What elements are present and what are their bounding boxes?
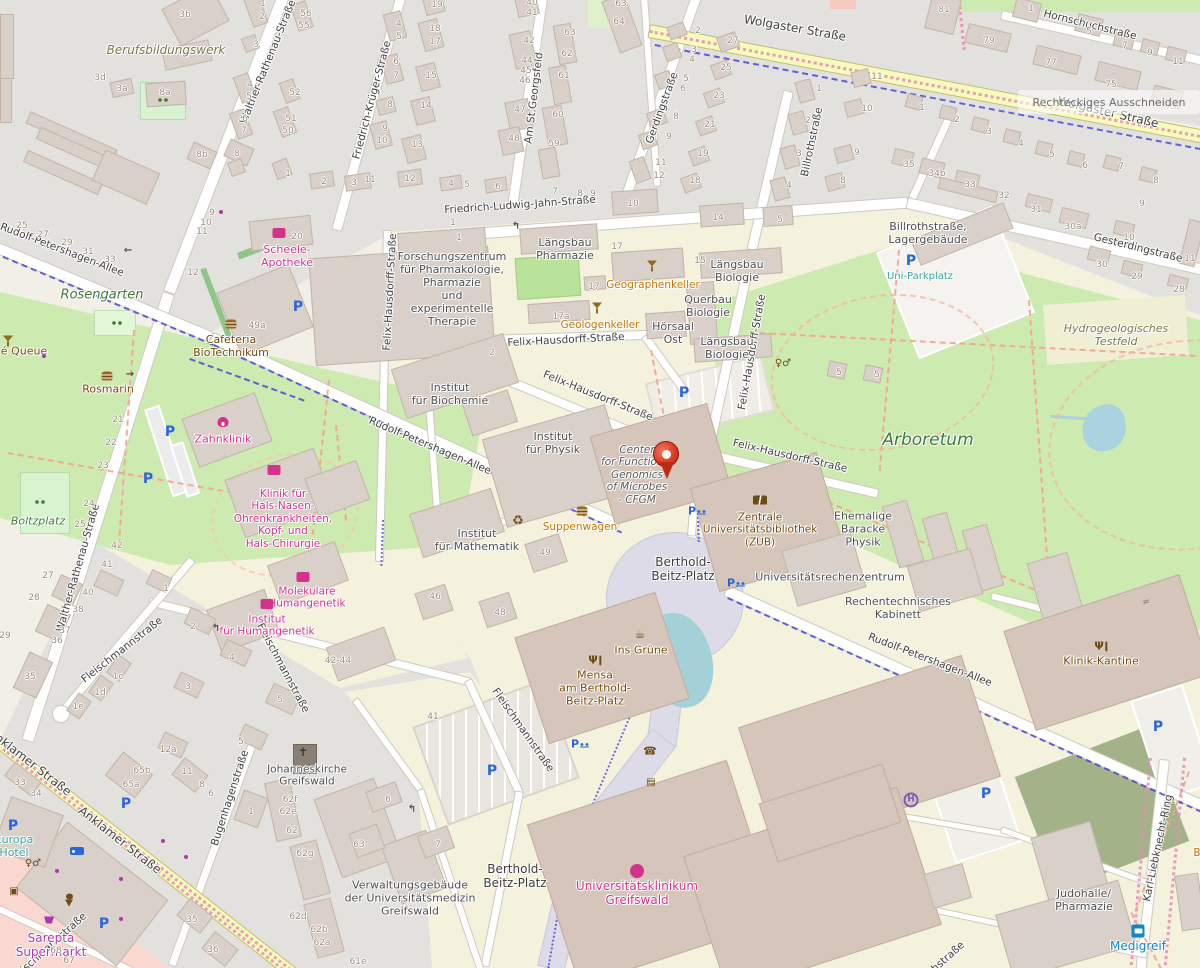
house-number: 47 — [514, 105, 525, 115]
house-number: 17 — [611, 242, 622, 252]
place-label-line: Berthold- — [483, 862, 546, 876]
house-number: 1e — [72, 702, 83, 712]
place-label-line: und — [398, 290, 507, 303]
house-number: 38 — [72, 605, 83, 615]
place-label-line: Apotheke — [261, 257, 313, 270]
place-label: Verwaltungsgebäudeder Universitätsmedizi… — [345, 880, 476, 919]
dot-icon — [161, 839, 165, 843]
house-number: 40 — [82, 588, 93, 598]
place-label: Boltzplatz — [11, 516, 65, 529]
place-label: EhemaligeBarackePhysik — [834, 511, 892, 550]
house-number: 1 — [260, 0, 266, 9]
house-number: 41 — [526, 8, 537, 18]
house-number: 9 — [1139, 199, 1145, 209]
map-canvas[interactable]: Walther-Rathenau-StraßeWalther-Rathenau-… — [0, 0, 1200, 968]
place-label-line: Zentrale — [703, 511, 818, 523]
house-number: 81 — [938, 5, 949, 15]
house-number: 5 — [277, 695, 283, 705]
phone-icon: ☎ — [643, 746, 657, 757]
house-number: 1d — [94, 688, 105, 698]
house-number: 11 — [196, 227, 207, 237]
house-number: 45 — [520, 66, 531, 76]
place-label: Institutfür Physik — [526, 431, 580, 457]
place-label: CafeteriaBioTechnikum — [193, 334, 269, 360]
house-number: 11 — [181, 767, 192, 777]
church-icon: ✝ — [298, 746, 308, 758]
house-number: 44 — [521, 56, 532, 66]
house-number: 35 — [903, 160, 914, 170]
pbike-icon[interactable]: P — [571, 739, 589, 750]
house-number: 3b — [179, 10, 190, 20]
place-label: Universitätsrechenzentrum — [755, 572, 905, 585]
park-icon[interactable]: P — [679, 386, 689, 400]
house-number: 62 — [286, 826, 297, 836]
house-number: 28 — [28, 593, 39, 603]
house-number: 35 — [186, 915, 197, 925]
house-number: 8 — [199, 780, 205, 790]
wc-icon: ♀♂ — [25, 859, 41, 869]
street-label: Sauerbruchstraße — [889, 939, 967, 968]
house-number: 50 — [282, 126, 293, 136]
house-number: 17 — [429, 37, 440, 47]
cock-icon — [592, 303, 602, 314]
place-label: Forschungszentrumfür Pharmakologie,Pharm… — [398, 251, 507, 329]
place-label-line: B — [1193, 847, 1200, 859]
place-label-line: Testfeld — [1064, 336, 1169, 349]
house-number: 3 — [351, 178, 357, 188]
house-number: 5 — [1049, 150, 1055, 160]
place-label-line: BioTechnikum — [193, 347, 269, 360]
street-label: Anklamer Straße — [0, 725, 74, 798]
place-label-line: am Berthold- — [559, 683, 631, 696]
play-icon — [34, 499, 46, 506]
house-number: 15 — [425, 71, 436, 81]
house-number: 10 — [376, 136, 387, 146]
park-icon[interactable]: P — [293, 300, 303, 314]
house-number: 17a — [553, 312, 570, 322]
street-label: Friedrich-Ludwig-Jahn-Straße — [444, 194, 596, 217]
turn-icon: ↰ — [512, 222, 520, 232]
pbike-icon[interactable]: P — [727, 578, 745, 589]
house-number: 9 — [854, 148, 860, 158]
place-label-line: Klinik für — [234, 488, 332, 500]
house-number: 1 — [450, 218, 456, 228]
place-label-line: Biologie — [700, 349, 753, 362]
house-number: 9 — [382, 124, 388, 134]
house-number: 33 — [14, 778, 25, 788]
house-number: 1c — [113, 672, 124, 682]
house-number: 6 — [495, 182, 501, 192]
place-label: Suppenwagen — [543, 521, 618, 533]
place-label-line: Rosengarten — [61, 287, 144, 302]
house-number: 49 — [539, 548, 550, 558]
house-number: 25 — [720, 63, 731, 73]
house-number: 2 — [190, 622, 196, 632]
place-label-line: für Physik — [526, 444, 580, 457]
street-label: Bugenhagenstraße — [209, 749, 251, 848]
house-number: 9 — [209, 208, 215, 218]
house-number: 28 — [1173, 285, 1184, 295]
house-number: 61 — [558, 71, 569, 81]
place-label: LängsbauBiologie — [700, 336, 753, 362]
house-number: 49a — [249, 321, 266, 331]
label-layer: Walther-Rathenau-StraßeWalther-Rathenau-… — [0, 0, 1200, 968]
house-number: 3 — [796, 149, 802, 159]
house-number: 29 — [61, 238, 72, 248]
burger-icon — [577, 507, 588, 516]
park-icon[interactable]: P — [1153, 720, 1163, 734]
house-number: 42 — [111, 541, 122, 551]
house-number: 79 — [983, 36, 994, 46]
house-number: 3 — [185, 682, 191, 692]
place-label-line: Pharmazie — [398, 277, 507, 290]
place-label-line: für Biochemie — [412, 395, 489, 408]
house-number: 48 — [494, 608, 505, 618]
house-number: 5 — [777, 215, 783, 225]
place-label-line: Pharmazie — [536, 250, 594, 263]
house-number: 8 — [387, 100, 393, 110]
place-label: Rosmarin — [82, 384, 134, 397]
place-label: JohanneskircheGreifswald — [267, 764, 347, 789]
house-number: 41 — [101, 560, 112, 570]
house-number: 8 — [1153, 176, 1159, 186]
place-label-line: Berthold- — [651, 555, 714, 569]
place-label: EuropaHotel — [0, 834, 33, 860]
house-number: 14 — [420, 101, 431, 111]
arrowR-icon: → — [126, 370, 134, 380]
place-label: HörsaalOst — [652, 321, 694, 347]
house-number: 22 — [105, 438, 116, 448]
place-label-line: Berufsbildungswerk — [107, 43, 226, 57]
bus-icon[interactable] — [1132, 925, 1145, 938]
house-number: 2 — [321, 177, 327, 187]
place-label: Judohalle/Pharmazie — [1055, 888, 1113, 914]
house-number: 62f — [283, 795, 298, 805]
house-number: 3a — [116, 84, 127, 94]
house-number: 11 — [871, 72, 882, 82]
book-icon — [753, 496, 767, 505]
place-label-line: Klinik-Kantine — [1063, 656, 1139, 669]
park-icon[interactable]: P — [121, 797, 131, 811]
place-label-line: Rosmarin — [82, 384, 134, 397]
house-number: 11 — [655, 158, 666, 168]
house-number: 62b — [310, 925, 327, 935]
house-number: 51 — [285, 114, 296, 124]
street-label: Anklamer Straße — [76, 803, 164, 876]
house-number: 7 — [1122, 41, 1128, 51]
house-number: 1 — [285, 169, 291, 179]
house-number: 13 — [411, 140, 422, 150]
house-number: 30 — [1096, 260, 1107, 270]
house-number: 2 — [954, 115, 960, 125]
marker-point — [660, 462, 674, 479]
place-label: Geologenkeller — [561, 319, 640, 331]
place-label-line: Therapie — [398, 316, 507, 329]
house-number: 36 — [207, 945, 218, 955]
wc-icon: ♀♂ — [775, 359, 791, 369]
house-number: 21 — [704, 120, 715, 130]
house-number: 8 — [234, 149, 240, 159]
park-icon[interactable]: P — [487, 764, 497, 778]
place-label-line: der Universitätsmedizin — [345, 893, 476, 906]
place-label-line: Arboretum — [882, 430, 973, 450]
street-label: Felix-Hausdorff-Straße — [541, 368, 654, 423]
house-number: 63 — [615, 0, 626, 9]
house-number: 1 — [816, 84, 822, 94]
place-label: Berthold-Beitz-Platz — [651, 555, 714, 583]
place-label: LängsbauPharmazie — [536, 237, 594, 263]
street-label: Felix-Hausdorff-Straße — [507, 331, 625, 349]
house-number: 1 — [248, 807, 254, 817]
cart-icon — [44, 917, 54, 924]
park-icon[interactable]: P — [906, 254, 916, 268]
house-number: 19 — [431, 0, 442, 10]
street-label: Hornschuchstraße — [1042, 8, 1138, 43]
house-number: 20 — [291, 232, 302, 242]
house-number: 27 — [37, 230, 48, 240]
money-icon: ▣ — [9, 887, 18, 897]
house-number: 46 — [519, 76, 530, 86]
house-number: 33 — [964, 180, 975, 190]
place-label-line: Zahnklinik — [194, 434, 251, 447]
place-label-line: Johanneskirche — [267, 764, 347, 776]
hosp-icon — [297, 572, 310, 582]
pharm-icon — [273, 228, 286, 238]
house-number: 46 — [429, 592, 440, 602]
street-label: Felix-Hausdorff-Straße — [732, 437, 849, 475]
bed-icon — [70, 847, 84, 855]
house-number: 75 — [1105, 80, 1116, 90]
dot-icon — [119, 917, 123, 921]
house-number: 4 — [229, 653, 235, 663]
place-label-line: Boltzplatz — [11, 516, 65, 529]
place-label: Uni-Parkplatz — [887, 271, 953, 283]
rest-icon: Ψ — [1094, 641, 1107, 652]
arrowL-icon: ← — [124, 246, 132, 256]
place-label-line: Greifswald — [345, 905, 476, 918]
turn-icon: ↰ — [212, 624, 220, 634]
street-label: Billrothstraße — [799, 106, 825, 178]
house-number: 7 — [241, 126, 247, 136]
place-label-line: Humangenetik — [268, 598, 345, 610]
place-label: Medigreif — [1110, 939, 1166, 953]
house-number: 64 — [613, 17, 624, 27]
street-label: Rudolf-Petershagen-Allee — [866, 631, 993, 689]
house-number: 40 — [526, 0, 537, 8]
place-label: Institutfür Mathematik — [435, 528, 519, 554]
house-number: 2 — [489, 348, 495, 358]
house-number: 52 — [289, 88, 300, 98]
house-number: 18 — [689, 176, 700, 186]
house-number: 62 — [561, 49, 572, 59]
dot-icon — [184, 855, 188, 859]
hosp-icon — [268, 465, 281, 475]
street-label: Rudolf-Petershagen-Allee — [367, 415, 493, 477]
place-label: Zahnklinik — [194, 434, 251, 447]
place-label: Geographenkeller — [606, 279, 700, 291]
house-number: 5 — [246, 92, 252, 102]
house-number: 34b — [928, 169, 945, 179]
search-result-marker[interactable] — [653, 441, 681, 481]
house-number: 14 — [712, 213, 723, 223]
snip-tooltip-overlay: Rechteckiges Ausschneiden — [1018, 90, 1200, 114]
house-number: 5 — [1086, 27, 1092, 37]
house-number: 21 — [112, 415, 123, 425]
place-label-line: Ohrenkrankheiten, — [234, 513, 332, 525]
house-number: 12 — [653, 171, 664, 181]
place-label-line: Biologie — [684, 307, 732, 320]
place-label-line: Greifswald — [576, 893, 698, 907]
house-number: 7 — [552, 187, 558, 197]
turn-icon: ↰ — [408, 805, 416, 815]
house-number: 77 — [1045, 58, 1056, 68]
place-label-line: Ost — [652, 334, 694, 347]
place-label-line: Suppenwagen — [543, 521, 618, 533]
place-label: Berufsbildungswerk — [107, 43, 226, 57]
place-label: Billrothstraße,Lagergebäude — [888, 221, 967, 247]
house-number: 6 — [242, 114, 248, 124]
street-label: Karl-Liebknecht-Ring — [1141, 793, 1175, 902]
place-label: ZentraleUniversitätsbibliothek(ZUB) — [703, 511, 818, 548]
house-number: 19 — [697, 149, 708, 159]
place-label-line: Uni-Parkplatz — [887, 271, 953, 283]
house-number: 5 — [836, 368, 842, 378]
house-number: 5 — [464, 180, 470, 190]
house-number: 29 — [1131, 272, 1142, 282]
street-label: Walther-Rathenau-Straße — [238, 0, 299, 126]
house-number: 10 — [861, 104, 872, 114]
house-number: 41 — [427, 712, 438, 722]
house-number: 3 — [253, 40, 259, 50]
street-label: Wolgaster Straße — [743, 12, 847, 44]
house-number: 62d — [289, 912, 306, 922]
place-label-line: Universitätsklinikum — [576, 879, 698, 893]
place-label-line: für Mathematik — [435, 541, 519, 554]
house-number: 11 — [1172, 57, 1183, 67]
house-number: 68 — [50, 946, 61, 956]
house-number: 35 — [24, 672, 35, 682]
dot-icon — [55, 869, 59, 873]
house-number: 27 — [42, 571, 53, 581]
house-number: 3 — [986, 127, 992, 137]
house-number: 62a — [314, 938, 331, 948]
play-icon — [111, 320, 123, 327]
place-label-line: Geographenkeller — [606, 279, 700, 291]
house-number: 2 — [259, 12, 265, 22]
place-label: Berthold-Beitz-Platz — [483, 862, 546, 890]
house-number: 5 — [396, 32, 402, 42]
dot-icon — [42, 354, 46, 358]
house-number: 12a — [160, 745, 177, 755]
house-number: 37 — [59, 626, 70, 636]
house-number: 4 — [689, 55, 695, 65]
place-label-line: Baracke — [834, 524, 892, 537]
place-label-line: of Microbes — [601, 481, 673, 493]
house-number: 4 — [786, 181, 792, 191]
place-label-line: Beitz-Platz — [559, 695, 631, 708]
place-label-line: für Humangenetik — [219, 626, 314, 638]
rest-icon: Ψ — [588, 655, 601, 666]
place-label: Arboretum — [882, 430, 973, 450]
house-number: 29 — [0, 631, 11, 641]
place-label-line: Hals-Chirurgie — [234, 538, 332, 550]
place-label: MolekulareHumangenetik — [268, 586, 345, 611]
place-label: HydrogeologischesTestfeld — [1064, 323, 1169, 349]
place-label-line: - CFGM — [601, 494, 673, 506]
house-number: 7 — [393, 71, 399, 81]
house-number: 4 — [1018, 139, 1024, 149]
house-number: 32 — [998, 191, 1009, 201]
park-icon[interactable]: P — [8, 819, 18, 833]
ice-icon — [65, 894, 73, 907]
street-label: Fleischmannstraße — [490, 686, 557, 774]
house-number: 7 — [435, 840, 441, 850]
park-icon[interactable]: P — [143, 472, 153, 486]
house-number: 65a — [123, 780, 140, 790]
park-icon[interactable]: P — [99, 917, 109, 931]
place-label-line: (ZUB) — [703, 536, 818, 548]
heli-icon: H — [904, 793, 919, 808]
house-number: 12 — [404, 174, 415, 184]
place-label-line: Ins Grüne — [614, 645, 667, 658]
house-number: 8 — [673, 112, 679, 122]
house-number: 7 — [1118, 162, 1124, 172]
place-label-line: é Queue — [1, 346, 47, 359]
house-number: 36 — [51, 636, 62, 646]
house-number: 3d — [94, 73, 105, 83]
park-icon[interactable]: P — [165, 425, 175, 439]
house-number: 9 — [1147, 48, 1153, 58]
park-icon[interactable]: P — [981, 787, 991, 801]
place-label: Scheele-Apotheke — [261, 244, 313, 270]
house-number: 55 — [298, 21, 309, 31]
place-label-line: Biologie — [710, 272, 763, 285]
house-number: 4 — [448, 179, 454, 189]
house-number: 1 — [1028, 4, 1034, 14]
house-number: 27 — [727, 36, 738, 46]
hospcross-icon — [630, 864, 644, 878]
house-number: 15 — [694, 256, 705, 266]
house-number: 62g — [296, 849, 313, 859]
place-label-line: Lagergebäude — [888, 234, 967, 247]
house-number: 10 — [627, 199, 638, 209]
house-number: 5 — [683, 74, 689, 84]
house-number: 9 — [666, 132, 672, 142]
place-label-line: Kabinett — [845, 609, 951, 622]
house-number: 6 — [393, 57, 399, 67]
burger-icon — [226, 320, 237, 329]
house-number: 2 — [805, 116, 811, 126]
marker-hole — [662, 450, 671, 459]
house-number: 10 — [1123, 233, 1134, 243]
house-number: 63 — [353, 840, 364, 850]
house-number: 25 — [74, 520, 85, 530]
cafe-icon: ☕ — [635, 628, 646, 640]
house-number: 2 — [695, 26, 701, 36]
house-number: 11 — [364, 175, 375, 185]
house-number: 61e — [350, 957, 367, 967]
pbike-icon[interactable]: P — [688, 506, 706, 517]
house-number: 31 — [1030, 205, 1041, 215]
burger-icon — [102, 372, 113, 381]
place-label-line: Beitz-Platz — [483, 876, 546, 890]
house-number: 62e — [280, 807, 297, 817]
place-label: QuerbauBiologie — [684, 294, 732, 320]
place-label-line: Institut — [219, 614, 314, 626]
house-number: 25 — [16, 221, 27, 231]
house-number: 65b — [133, 766, 150, 776]
dot-icon — [119, 877, 123, 881]
